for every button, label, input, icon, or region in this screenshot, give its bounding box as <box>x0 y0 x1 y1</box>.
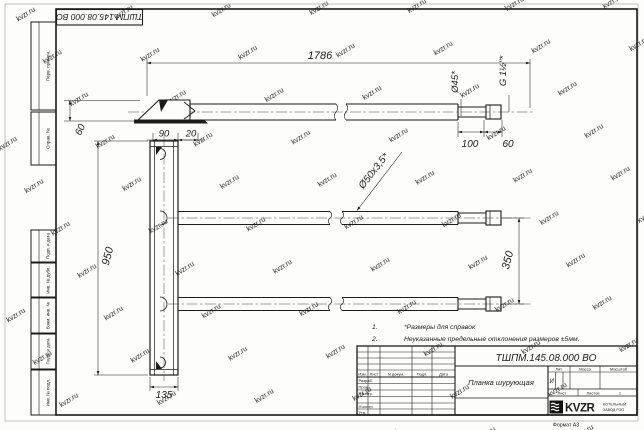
side-box-label: Инв. № подл. <box>46 379 51 406</box>
note-2-num: 2. <box>371 336 378 343</box>
dim-135-label: 135 <box>156 390 173 401</box>
hdr-lit: Лит. <box>555 367 562 372</box>
dim-60-label: 60 <box>502 139 514 150</box>
note-1-num: 1. <box>372 324 378 331</box>
logo-line2: ЗАВОД РЭП <box>603 408 624 412</box>
row-tkontr: Т.контр. <box>359 391 374 396</box>
note-1-text: *Размеры для справок <box>404 323 476 331</box>
title-doc-number: ТШПМ.145.08.000 ВО <box>496 353 597 364</box>
col-sign: Подп. <box>417 372 428 377</box>
side-box-label: Инв. № дубл. <box>46 266 51 293</box>
dim-90-label: 90 <box>159 129 170 140</box>
col-list: Лист <box>370 372 379 377</box>
hdr-sheet: Лист <box>558 391 567 396</box>
side-box-label: Справ. № <box>46 128 51 149</box>
note-2-text: Неуказанные предельные отклонения размер… <box>404 335 580 343</box>
drawing-canvas: kvzr.ru Перв. примен. Справ. № Подп. и д… <box>0 0 644 430</box>
logo-line1: КОТЕЛЬНЫЙ <box>603 403 626 407</box>
row-utv: Утв. <box>359 410 367 415</box>
hdr-mass: Масса <box>579 367 592 372</box>
title-part-name: Планка шурующая <box>468 378 534 387</box>
litera-value: И <box>550 379 555 385</box>
dim-100-label: 100 <box>462 139 479 150</box>
dim-20-label: 20 <box>185 129 197 140</box>
drawing-sheet: kvzr.ru Перв. примен. Справ. № Подп. и д… <box>0 0 644 430</box>
format-label: Формат А3 <box>553 423 579 429</box>
row-nkontr: Н.контр. <box>359 404 374 409</box>
dim-dia45-label: Ø45* <box>450 71 461 94</box>
dim-1786-label: 1786 <box>308 50 333 62</box>
col-izm: Изм. <box>358 372 367 377</box>
row-prov: Пров. <box>359 385 370 390</box>
hdr-scale: Масштаб <box>610 367 628 372</box>
col-date: Дата <box>439 372 449 377</box>
row-razrab: Разраб. <box>359 378 373 383</box>
dim-thread-label: G 1½"* <box>498 56 509 87</box>
side-box-label: Подп. и дата <box>46 338 51 364</box>
side-box-label: Взам. инв. № <box>46 302 51 329</box>
logo-name: KVZR <box>565 403 596 415</box>
corner-stamp-number: ТШПМ.145.08.000 ВО <box>56 12 143 22</box>
hdr-sheets: Листов <box>587 391 600 396</box>
side-box-label: Подп. и дата <box>46 233 51 259</box>
side-box-label: Перв. примен. <box>46 51 51 82</box>
col-doc: N докум. <box>388 372 404 377</box>
